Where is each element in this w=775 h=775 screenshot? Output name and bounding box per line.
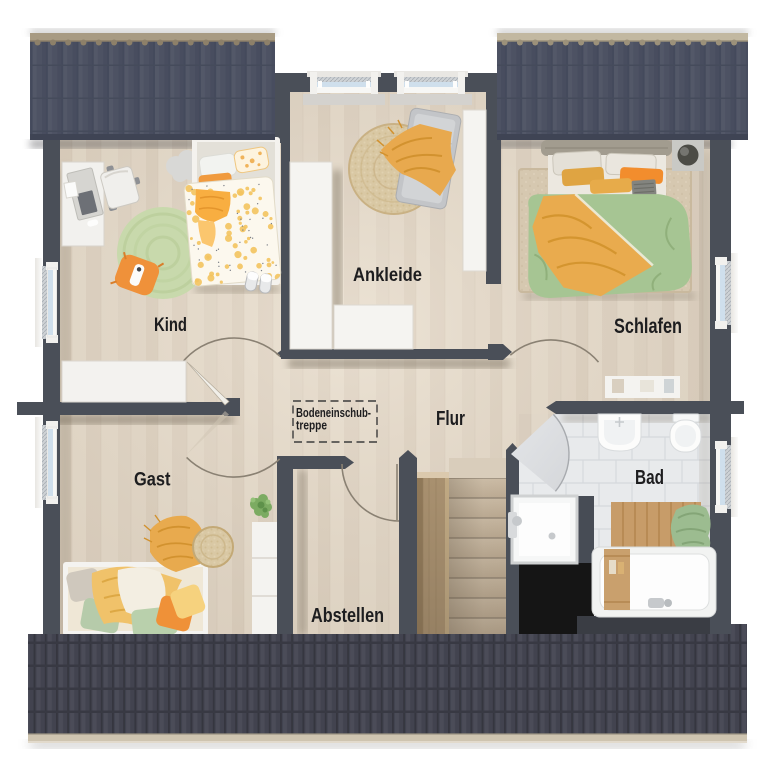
svg-text:Ankleide: Ankleide: [353, 264, 422, 286]
svg-text:Abstellen: Abstellen: [311, 604, 384, 627]
svg-text:Kind: Kind: [154, 315, 187, 336]
svg-text:Flur: Flur: [436, 408, 465, 430]
svg-text:Gast: Gast: [134, 469, 171, 491]
svg-text:treppe: treppe: [296, 418, 327, 433]
svg-text:Schlafen: Schlafen: [614, 315, 682, 338]
svg-text:Bad: Bad: [635, 466, 664, 489]
